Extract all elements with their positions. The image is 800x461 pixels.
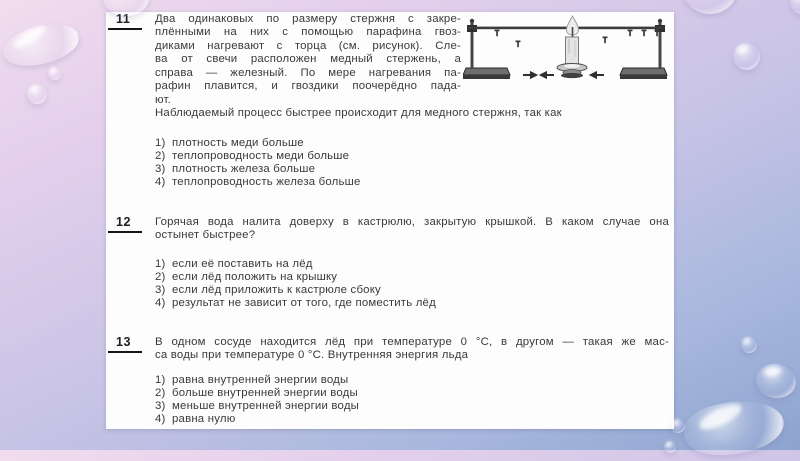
candle-heat-conduction-figure <box>463 13 668 81</box>
question-text-line: плёнными на них с помощью парафина гвоз- <box>155 26 461 39</box>
figure-drawing <box>463 13 668 81</box>
option-number: 2) <box>155 150 172 163</box>
option-number: 3) <box>155 163 172 176</box>
answer-option: 1)плотность меди больше <box>155 137 575 150</box>
bubble-decoration <box>27 84 47 104</box>
option-number: 1) <box>155 258 172 271</box>
option-number: 1) <box>155 374 172 387</box>
option-number: 2) <box>155 271 172 284</box>
question-number-underline <box>108 28 142 30</box>
question-number-text: 12 <box>108 216 142 229</box>
falling-nail-icon <box>516 41 521 48</box>
question-11-options: 1)плотность меди больше 2)теплопроводнос… <box>155 137 575 189</box>
bubble-decoration <box>790 0 800 14</box>
question-text-line: остынет быстрее? <box>155 229 669 242</box>
option-number: 4) <box>155 297 172 310</box>
answer-option: 4)теплопроводность железа больше <box>155 176 575 189</box>
option-text: равна нулю <box>172 413 235 426</box>
bubble-decoration <box>733 43 760 70</box>
answer-option: 4)результат не зависит от того, где поме… <box>155 297 575 310</box>
bubble-decoration <box>671 419 685 433</box>
question-13-options: 1)равна внутренней энергии воды 2)больше… <box>155 374 575 426</box>
answer-option: 2)теплопроводность меди больше <box>155 150 575 163</box>
option-text: равна внутренней энергии воды <box>172 374 348 387</box>
bubble-decoration <box>664 441 676 453</box>
nail-icon <box>495 30 500 37</box>
falling-nail-icon <box>603 37 608 44</box>
option-text: если её поставить на лёд <box>172 258 313 271</box>
bubble-decoration <box>741 337 757 353</box>
question-number-text: 13 <box>108 336 142 349</box>
question-text-line: диками нагревают с торца (см. рисунок). … <box>155 40 461 53</box>
question-number-underline <box>108 351 142 353</box>
option-text: если лёд приложить к кастрюле сбоку <box>172 284 381 297</box>
option-number: 4) <box>155 176 172 189</box>
bubble-decoration <box>753 361 798 401</box>
option-text: плотность меди больше <box>172 137 304 150</box>
horizontal-rod <box>468 27 663 30</box>
question-12-number: 12 <box>108 216 142 233</box>
test-document-page: 11 Два одинаковых по размеру стержня с з… <box>106 12 674 429</box>
bubble-decoration <box>48 67 61 80</box>
question-text-line: ют. <box>155 94 461 107</box>
question-number-underline <box>108 231 142 233</box>
option-text: больше внутренней энергии воды <box>172 387 358 400</box>
option-number: 3) <box>155 284 172 297</box>
bubble-decoration <box>682 0 738 14</box>
question-text-line: рафин плавится, и гвоздики поочерёдно па… <box>155 80 461 93</box>
question-13-body: В одном сосуде находится лёд при темпера… <box>155 336 669 363</box>
question-text-line: ва от свечи расположен медный стержень, … <box>155 53 461 66</box>
option-text: теплопроводность меди больше <box>172 150 349 163</box>
option-text: если лёд положить на крышку <box>172 271 337 284</box>
question-text-line: справа — железный. По мере нагревания па… <box>155 67 461 80</box>
bubble-decoration <box>681 395 787 460</box>
answer-option: 3)плотность железа больше <box>155 163 575 176</box>
question-12-options: 1)если её поставить на лёд 2)если лёд по… <box>155 258 575 310</box>
option-number: 2) <box>155 387 172 400</box>
question-12-body: Горячая вода налита доверху в кастрюлю, … <box>155 216 669 243</box>
option-text: результат не зависит от того, где помест… <box>172 297 436 310</box>
answer-option: 2)больше внутренней энергии воды <box>155 387 575 400</box>
option-number: 1) <box>155 137 172 150</box>
question-text-line: Два одинаковых по размеру стержня с закр… <box>155 13 461 26</box>
question-11-conclusion-line: Наблюдаемый процесс быстрее происходит д… <box>155 107 669 120</box>
slide-background: 11 Два одинаковых по размеру стержня с з… <box>0 0 800 450</box>
question-text-line: Горячая вода налита доверху в кастрюлю, … <box>155 216 669 229</box>
option-number: 3) <box>155 400 172 413</box>
option-number: 4) <box>155 413 172 426</box>
candle-icon <box>557 16 587 78</box>
option-text: теплопроводность железа больше <box>172 176 361 189</box>
question-text-line: В одном сосуде находится лёд при темпера… <box>155 336 669 349</box>
answer-option: 4)равна нулю <box>155 413 575 426</box>
answer-option: 3)меньше внутренней энергии воды <box>155 400 575 413</box>
question-11-body: Два одинаковых по размеру стержня с закр… <box>155 13 461 107</box>
answer-option: 2)если лёд положить на крышку <box>155 271 575 284</box>
question-13-number: 13 <box>108 336 142 353</box>
option-text: плотность железа больше <box>172 163 315 176</box>
answer-option: 1)равна внутренней энергии воды <box>155 374 575 387</box>
option-text: меньше внутренней энергии воды <box>172 400 359 413</box>
nail-icon <box>628 30 660 37</box>
question-text-line: са воды при температуре 0 °C. Внутренняя… <box>155 349 669 362</box>
answer-option: 3)если лёд приложить к кастрюле сбоку <box>155 284 575 297</box>
bubble-decoration <box>0 17 83 73</box>
answer-option: 1)если её поставить на лёд <box>155 258 575 271</box>
